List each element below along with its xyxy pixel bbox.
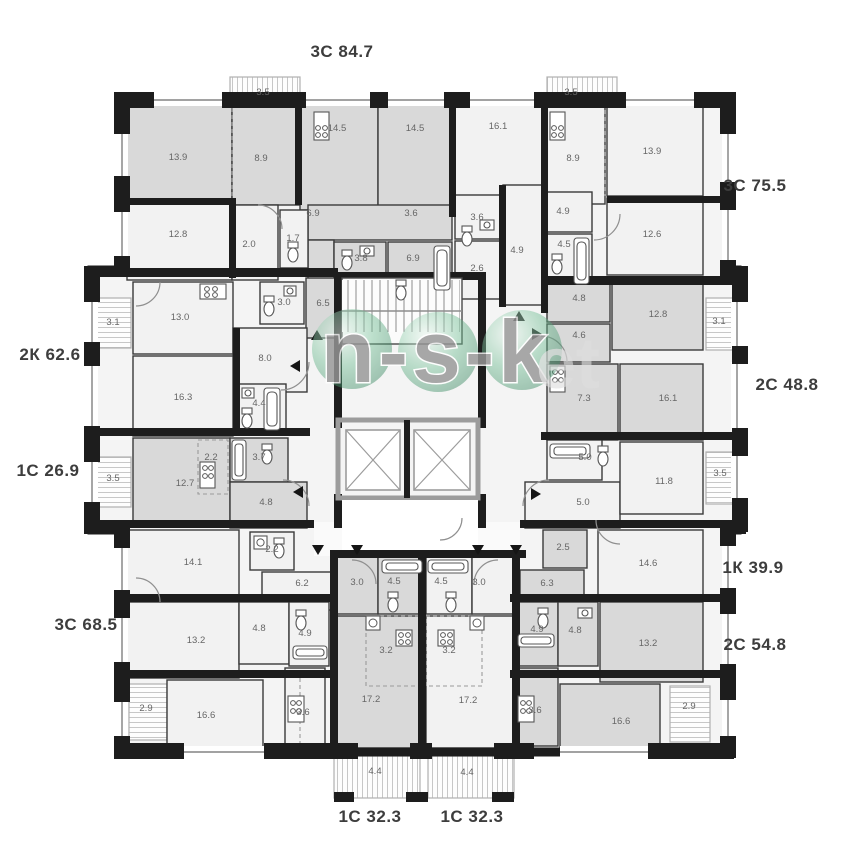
room-area-label: 4.8 bbox=[572, 293, 585, 304]
room-area-label: 17.2 bbox=[362, 694, 381, 705]
toilet-icon bbox=[264, 296, 274, 316]
room-area-label: 2.2 bbox=[265, 544, 278, 555]
room-area-label: 3.6 bbox=[296, 707, 309, 718]
bathtub-icon bbox=[264, 388, 280, 430]
room-area-label: 5.0 bbox=[578, 452, 591, 463]
room-area-label: 4.8 bbox=[259, 497, 272, 508]
sink-icon bbox=[242, 388, 254, 398]
watermark-text: n-s-k bbox=[321, 302, 551, 401]
toilet-icon bbox=[446, 592, 456, 612]
floor-plan-drawing: n-s-k et 3.5 14.5 14.5 16.1 3.5 13.9 8.9… bbox=[0, 0, 850, 866]
room-area-label: 4.5 bbox=[387, 576, 400, 587]
room-area-label: 2.9 bbox=[139, 703, 152, 714]
room-area-label: 12.8 bbox=[169, 229, 188, 240]
toilet-icon bbox=[388, 592, 398, 612]
room-area-label: 14.5 bbox=[328, 123, 347, 134]
room bbox=[127, 602, 239, 678]
room-area-label: 4.4 bbox=[368, 766, 381, 777]
room-area-label: 13.9 bbox=[169, 152, 188, 163]
room-area-label: 6.5 bbox=[316, 298, 329, 309]
washer-icon bbox=[366, 616, 380, 630]
room-area-label: 4.9 bbox=[510, 245, 523, 256]
room-area-label: 6.3 bbox=[540, 578, 553, 589]
room-area-label: 14.5 bbox=[406, 123, 425, 134]
room-area-label: 16.6 bbox=[612, 716, 631, 727]
room-area-label: 3.6 bbox=[470, 212, 483, 223]
room-area-label: 16.6 bbox=[197, 710, 216, 721]
room-area-label: 13.0 bbox=[171, 312, 190, 323]
stove-icon bbox=[396, 630, 412, 646]
apartment-label: 1С 32.3 bbox=[338, 807, 401, 826]
room-area-label: 4.6 bbox=[572, 330, 585, 341]
room-area-label: 6.9 bbox=[406, 253, 419, 264]
bathtub-icon bbox=[293, 646, 327, 659]
room-area-label: 3.6 bbox=[404, 208, 417, 219]
room-area-label: 3.2 bbox=[379, 645, 392, 656]
sink-icon bbox=[284, 286, 296, 296]
room-area-label: 8.0 bbox=[258, 353, 271, 364]
room-area-label: 8.9 bbox=[566, 153, 579, 164]
room-area-label: 2.9 bbox=[682, 701, 695, 712]
toilet-icon bbox=[242, 408, 252, 428]
loggia bbox=[670, 686, 710, 742]
room-area-label: 11.8 bbox=[655, 476, 673, 487]
room-area-label: 4.9 bbox=[298, 628, 311, 639]
balcony bbox=[334, 756, 420, 798]
apartment-label: 2С 54.8 bbox=[723, 635, 786, 654]
corridor bbox=[503, 185, 545, 305]
room-area-label: 3.5 bbox=[106, 473, 119, 484]
apartment-label: 1С 26.9 bbox=[16, 461, 79, 480]
corridor bbox=[308, 205, 452, 240]
room-area-label: 4.9 bbox=[530, 624, 543, 635]
toilet-icon bbox=[342, 250, 352, 270]
room-area-label: 6.2 bbox=[295, 578, 308, 589]
room-area-label: 8.9 bbox=[254, 153, 267, 164]
apartment-label: 2С 48.8 bbox=[755, 375, 818, 394]
bathtub-icon bbox=[232, 440, 246, 480]
apartment-label: 2К 62.6 bbox=[19, 345, 80, 364]
bathtub-icon bbox=[434, 246, 450, 290]
room-area-label: 4.4 bbox=[460, 767, 473, 778]
room-area-label: 4.4 bbox=[252, 398, 265, 409]
stove-icon bbox=[314, 112, 329, 140]
room-area-label: 3.1 bbox=[106, 317, 119, 328]
room-area-label: 2.2 bbox=[204, 452, 217, 463]
room-area-label: 16.1 bbox=[659, 393, 678, 404]
toilet-icon bbox=[296, 610, 306, 630]
toilet-icon bbox=[598, 446, 608, 466]
room-area-label: 17.2 bbox=[459, 695, 478, 706]
bathtub-icon bbox=[518, 634, 554, 647]
bathtub-icon bbox=[382, 560, 422, 573]
stove-icon bbox=[438, 630, 454, 646]
room-area-label: 13.9 bbox=[643, 146, 662, 157]
room-area-label: 16.1 bbox=[489, 121, 508, 132]
room-area-label: 3.0 bbox=[277, 297, 290, 308]
washer-icon bbox=[470, 616, 484, 630]
room-area-label: 3.7 bbox=[252, 452, 265, 463]
room-area-label: 3.1 bbox=[712, 316, 725, 327]
stove-icon bbox=[200, 284, 226, 299]
apartment-label: 3С 68.5 bbox=[54, 615, 117, 634]
room-area-label: 3.5 bbox=[256, 87, 269, 98]
toilet-icon bbox=[462, 226, 472, 246]
room-area-label: 7.3 bbox=[577, 393, 590, 404]
room-area-label: 4.8 bbox=[252, 623, 265, 634]
apartment-label: 1К 39.9 bbox=[722, 558, 783, 577]
sink-icon bbox=[578, 608, 592, 618]
room bbox=[378, 104, 452, 210]
room-area-label: 2.5 bbox=[556, 542, 569, 553]
apartment-label: 1С 32.3 bbox=[440, 807, 503, 826]
toilet-icon bbox=[288, 242, 298, 262]
room-area-label: 13.2 bbox=[639, 638, 658, 649]
room-area-label: 4.8 bbox=[568, 625, 581, 636]
bathtub-icon bbox=[574, 238, 589, 284]
toilet-icon bbox=[396, 280, 406, 300]
room-area-label: 4.9 bbox=[556, 206, 569, 217]
apartment-label: 3С 84.7 bbox=[310, 42, 373, 61]
room-area-label: 16.3 bbox=[174, 392, 193, 403]
toilet-icon bbox=[552, 254, 562, 274]
room-area-label: 4.5 bbox=[557, 239, 570, 250]
room-area-label: 2.6 bbox=[470, 263, 483, 274]
room-area-label: 12.7 bbox=[176, 478, 195, 489]
room-area-label: 14.1 bbox=[184, 557, 203, 568]
room-area-label: 5.0 bbox=[576, 497, 589, 508]
room-area-label: 14.6 bbox=[639, 558, 658, 569]
room-area-label: 6.9 bbox=[306, 208, 319, 219]
room-area-label: 4.5 bbox=[434, 576, 447, 587]
room-area-label: 3.0 bbox=[350, 577, 363, 588]
elevator-lobby bbox=[342, 500, 478, 550]
room-area-label: 3.0 bbox=[472, 577, 485, 588]
stove-icon bbox=[550, 112, 565, 140]
room-area-label: 12.8 bbox=[649, 309, 668, 320]
room-area-label: 3.8 bbox=[354, 253, 367, 264]
room bbox=[300, 104, 378, 210]
room-area-label: 3.5 bbox=[564, 87, 577, 98]
room-area-label: 2.0 bbox=[242, 239, 255, 250]
room-area-label: 1.7 bbox=[286, 233, 299, 244]
stove-icon bbox=[200, 462, 215, 488]
floor-plan-page: n-s-k et 3.5 14.5 14.5 16.1 3.5 13.9 8.9… bbox=[0, 0, 850, 866]
room-area-label: 13.2 bbox=[187, 635, 206, 646]
room bbox=[560, 684, 660, 748]
room-area-label: 3.5 bbox=[713, 468, 726, 479]
room-area-label: 3.6 bbox=[528, 705, 541, 716]
room-area-label: 3.2 bbox=[442, 645, 455, 656]
watermark-suffix: et bbox=[536, 324, 600, 404]
bathtub-icon bbox=[428, 560, 468, 573]
room-area-label: 12.6 bbox=[643, 229, 662, 240]
apartment-label: 3С 75.5 bbox=[723, 176, 786, 195]
